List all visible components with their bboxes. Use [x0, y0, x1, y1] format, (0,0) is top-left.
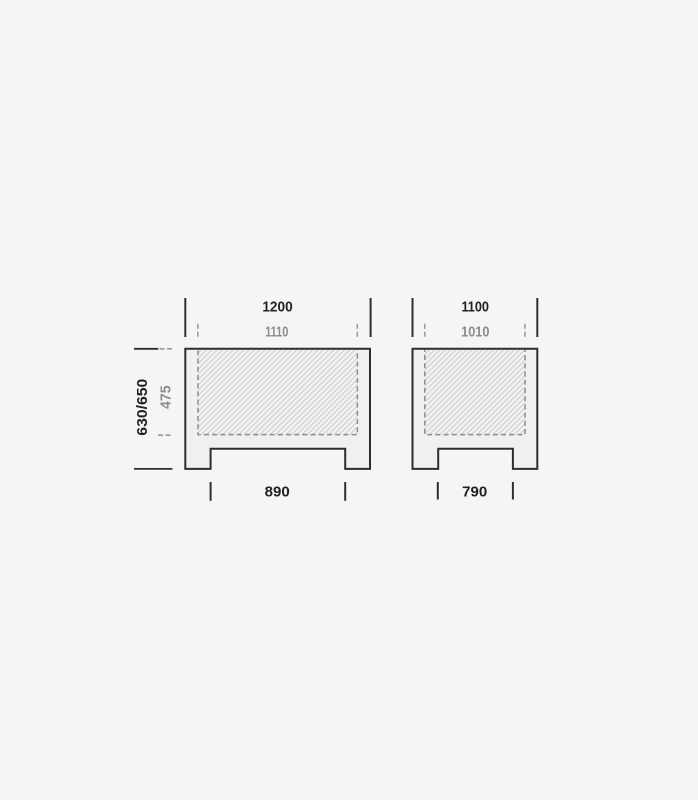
svg-text:790: 790: [462, 485, 487, 501]
svg-text:1010: 1010: [461, 325, 489, 341]
svg-text:1100: 1100: [461, 300, 489, 316]
svg-text:1200: 1200: [262, 300, 292, 316]
svg-text:630/650: 630/650: [135, 379, 151, 436]
svg-text:890: 890: [265, 485, 290, 501]
svg-text:475: 475: [159, 385, 175, 409]
svg-text:1110: 1110: [265, 325, 288, 341]
